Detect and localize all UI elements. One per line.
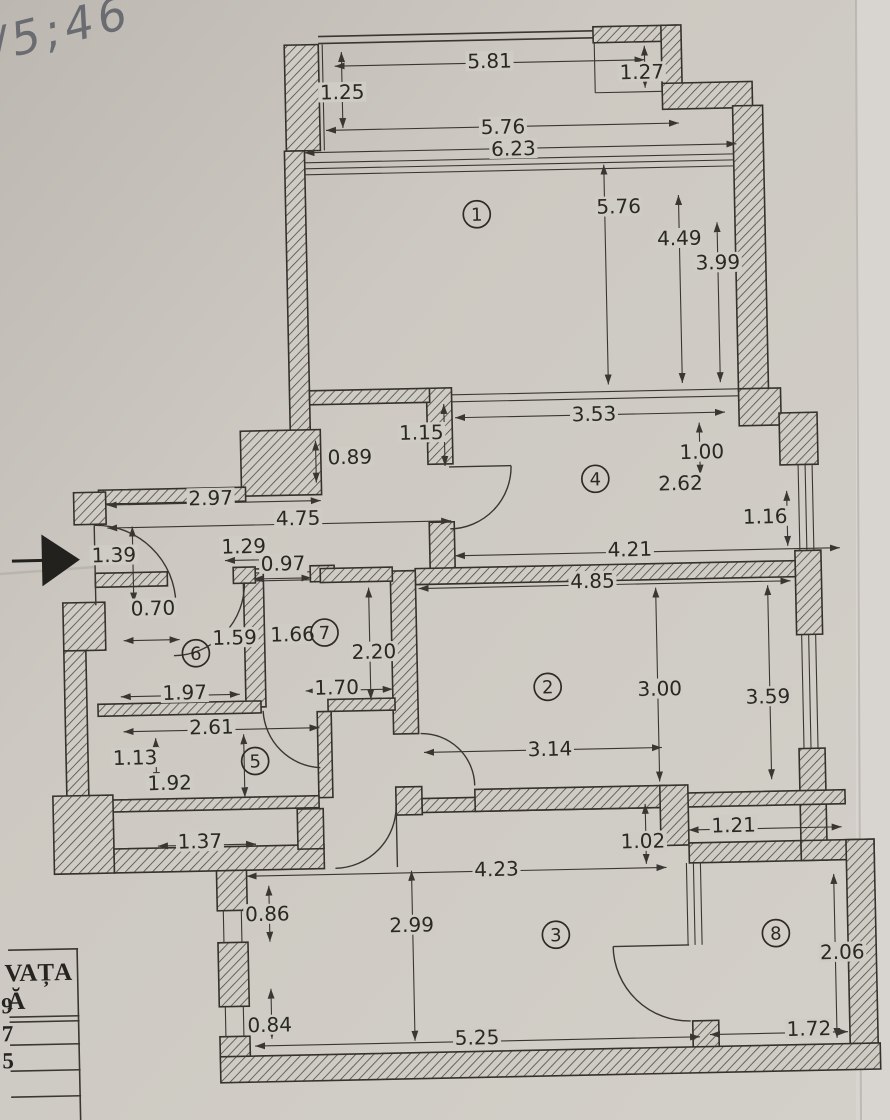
wall-segment bbox=[689, 841, 801, 863]
dimension-label: 5.81 bbox=[467, 48, 512, 73]
dimension-label: 0.97 bbox=[261, 551, 306, 576]
wall-segment bbox=[233, 567, 255, 583]
dimension-label: 3.14 bbox=[527, 736, 572, 761]
dimension-label: 1.66 bbox=[270, 622, 315, 647]
dimension-label: 1.59 bbox=[212, 625, 257, 650]
dimension-label: 4.75 bbox=[276, 506, 321, 531]
room-number-text: 1 bbox=[471, 205, 483, 226]
wall-segment bbox=[738, 388, 781, 426]
dimension-label: 1.39 bbox=[91, 542, 136, 567]
dimension-label: 0.86 bbox=[245, 901, 290, 926]
wall-segment bbox=[53, 795, 115, 874]
dimension-label: 5.25 bbox=[454, 1025, 499, 1050]
dimension-label: 4.21 bbox=[607, 537, 652, 562]
room-number-text: 8 bbox=[770, 924, 782, 945]
wall-segment bbox=[240, 430, 321, 497]
legend-row-fragment: 9 bbox=[1, 993, 13, 1018]
room-number-text: 7 bbox=[319, 623, 331, 644]
wall-segment bbox=[328, 698, 395, 711]
wall-segment bbox=[475, 785, 665, 811]
dimension-label: 2.61 bbox=[189, 714, 234, 739]
wall-segment bbox=[74, 492, 107, 525]
dimension-label: 1.21 bbox=[711, 813, 756, 838]
dimension-label: 1.25 bbox=[320, 80, 365, 105]
legend-row-fragment: 5 bbox=[2, 1048, 14, 1073]
dimension-label: 1.15 bbox=[399, 420, 444, 445]
dimension-label: 2.62 bbox=[658, 471, 703, 496]
wall-segment bbox=[64, 651, 89, 798]
room-number-text: 6 bbox=[190, 644, 202, 665]
legend-row-fragment: 7 bbox=[2, 1021, 14, 1046]
wall-segment bbox=[317, 711, 333, 797]
room-number-text: 4 bbox=[589, 469, 601, 490]
dimension-label: 0.70 bbox=[130, 596, 175, 621]
wall-segment bbox=[733, 105, 769, 391]
dimension-label: 4.85 bbox=[570, 568, 615, 593]
dimension-label: 2.97 bbox=[188, 485, 233, 510]
dimension-label: 1.00 bbox=[679, 439, 724, 464]
wall-segment bbox=[309, 388, 429, 405]
dimension-label: 1.13 bbox=[113, 745, 158, 770]
wall-segment bbox=[297, 809, 324, 850]
room-number-text: 2 bbox=[542, 677, 554, 698]
wall-segment bbox=[220, 1036, 250, 1059]
dimension-label: 3.53 bbox=[571, 401, 616, 426]
dimension-label: 4.49 bbox=[657, 226, 702, 251]
wall-segment bbox=[320, 567, 392, 583]
window-line bbox=[225, 1007, 226, 1037]
wall-segment bbox=[396, 787, 423, 816]
dimension-label: 3.00 bbox=[637, 676, 682, 701]
dimension-label: 2.99 bbox=[389, 912, 434, 937]
wall-segment bbox=[95, 572, 167, 588]
floorplan-scan: /5;46 VAȚA Ă 975 5.811.251.275.766.235.7… bbox=[0, 0, 890, 1120]
dimension-label: 3.59 bbox=[745, 684, 790, 709]
wall-segment bbox=[779, 412, 818, 465]
room-number-text: 5 bbox=[249, 751, 261, 772]
dimension-label: 1.16 bbox=[743, 504, 788, 529]
wall-segment bbox=[284, 45, 320, 152]
dimension-label: 1.37 bbox=[177, 829, 222, 854]
dimension-label: 6.23 bbox=[491, 136, 536, 161]
legend-header-line1: VAȚA bbox=[4, 959, 72, 988]
dimension-label: 4.23 bbox=[474, 857, 519, 882]
dimension-label: 1.97 bbox=[162, 680, 207, 705]
dimension-label: 0.89 bbox=[327, 445, 372, 470]
dimension-label: 1.72 bbox=[786, 1016, 831, 1041]
window-line bbox=[243, 1006, 244, 1036]
dimension-label: 5.76 bbox=[596, 194, 641, 219]
dimension-label: 1.92 bbox=[147, 770, 192, 795]
dimension-label: 1.27 bbox=[619, 59, 664, 84]
wall-segment bbox=[63, 602, 106, 651]
dimension-label: 1.02 bbox=[620, 828, 665, 853]
dimension-label: 0.84 bbox=[247, 1012, 292, 1037]
dimension-label: 1.70 bbox=[314, 675, 359, 700]
room-number-text: 3 bbox=[550, 925, 562, 946]
dimension-label: 3.99 bbox=[695, 250, 740, 275]
wall-segment bbox=[216, 870, 247, 911]
wall-segment bbox=[218, 942, 249, 1007]
dimension-label: 2.06 bbox=[820, 939, 865, 964]
window-line bbox=[223, 911, 224, 943]
dimension-label: 2.20 bbox=[351, 639, 396, 664]
wall-segment bbox=[795, 550, 823, 635]
window-line bbox=[241, 910, 242, 942]
